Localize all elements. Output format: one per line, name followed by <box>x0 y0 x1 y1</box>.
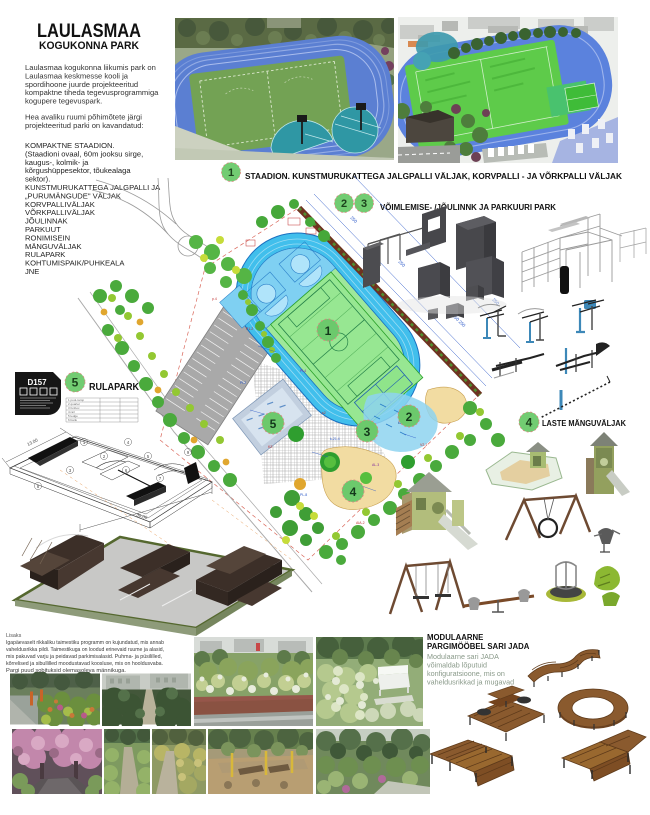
svg-text:PARGIMÖÖBEL SARI JADA: PARGIMÖÖBEL SARI JADA <box>427 642 530 651</box>
svg-text:KOHTUMISPAIK/PUHKEALA: KOHTUMISPAIK/PUHKEALA <box>25 259 125 268</box>
svg-text:projekteeritud parki on kavand: projekteeritud parki on kavandatud: <box>25 121 144 130</box>
svg-text:3: 3 <box>364 425 371 439</box>
svg-text:MODULAARNE: MODULAARNE <box>427 633 483 642</box>
svg-text:4: 4 <box>350 485 357 499</box>
svg-text:Pargi puud sobituksid olemasol: Pargi puud sobituksid olemasoleva männik… <box>6 668 126 674</box>
svg-text:6 bank: 6 bank <box>68 418 78 422</box>
svg-text:4: 4 <box>526 416 533 430</box>
svg-text:PL.8: PL.8 <box>300 493 307 497</box>
svg-text:3: 3 <box>361 198 367 210</box>
svg-text:LASTE MÄNGUVÄLJAK: LASTE MÄNGUVÄLJAK <box>542 418 626 428</box>
svg-text:K2: K2 <box>268 445 272 449</box>
svg-text:AL.3: AL.3 <box>372 463 379 467</box>
svg-text:JNE: JNE <box>25 267 39 276</box>
svg-text:VÕIMLEMISE- /JÕULINNK JA PARKU: VÕIMLEMISE- /JÕULINNK JA PARKUURI PARK <box>380 203 556 212</box>
svg-text:mis pakuvad varju ja peidavad: mis pakuvad varju ja peidavad parkimisal… <box>6 654 162 660</box>
svg-text:STAADION. KUNSTMURUKATTEGA JAL: STAADION. KUNSTMURUKATTEGA JALGPALLI VÄL… <box>245 172 622 181</box>
svg-text:vaheldusrikkad ja mugavad: vaheldusrikkad ja mugavad <box>427 678 514 687</box>
svg-text:kogupere tegevuspark.: kogupere tegevuspark. <box>25 97 102 106</box>
svg-text:kõrrelised ja sibullilled mood: kõrrelised ja sibullilled moodustavad ko… <box>6 661 163 667</box>
svg-text:RULAPARK: RULAPARK <box>89 382 140 393</box>
svg-text:vaheldusrikka pildi. Taimestik: vaheldusrikka pildi. Taimestikuga on loo… <box>6 647 164 653</box>
svg-text:PL4: PL4 <box>300 369 306 373</box>
svg-text:AIA.2: AIA.2 <box>356 521 365 525</box>
svg-text:LAULASMAA: LAULASMAA <box>37 21 141 42</box>
svg-text:2: 2 <box>406 410 413 424</box>
svg-text:Igapäevaselt rikkaliku taimest: Igapäevaselt rikkaliku taimestiku progra… <box>6 640 164 646</box>
svg-text:s2: s2 <box>322 411 326 415</box>
svg-text:Lisaks: Lisaks <box>6 633 22 639</box>
svg-text:5: 5 <box>72 376 79 390</box>
svg-text:k-21.4: k-21.4 <box>330 437 340 441</box>
svg-text:1: 1 <box>228 167 234 179</box>
svg-text:p.4: p.4 <box>212 297 217 301</box>
svg-text:5: 5 <box>270 417 277 431</box>
svg-text:P1.2: P1.2 <box>246 327 253 331</box>
svg-text:KOGUKONNA PARK: KOGUKONNA PARK <box>39 40 139 52</box>
svg-text:PL2: PL2 <box>240 381 246 385</box>
svg-text:2: 2 <box>341 198 347 210</box>
svg-text:D157: D157 <box>27 378 47 387</box>
svg-text:1: 1 <box>325 324 332 338</box>
svg-text:V2.1: V2.1 <box>420 443 427 447</box>
